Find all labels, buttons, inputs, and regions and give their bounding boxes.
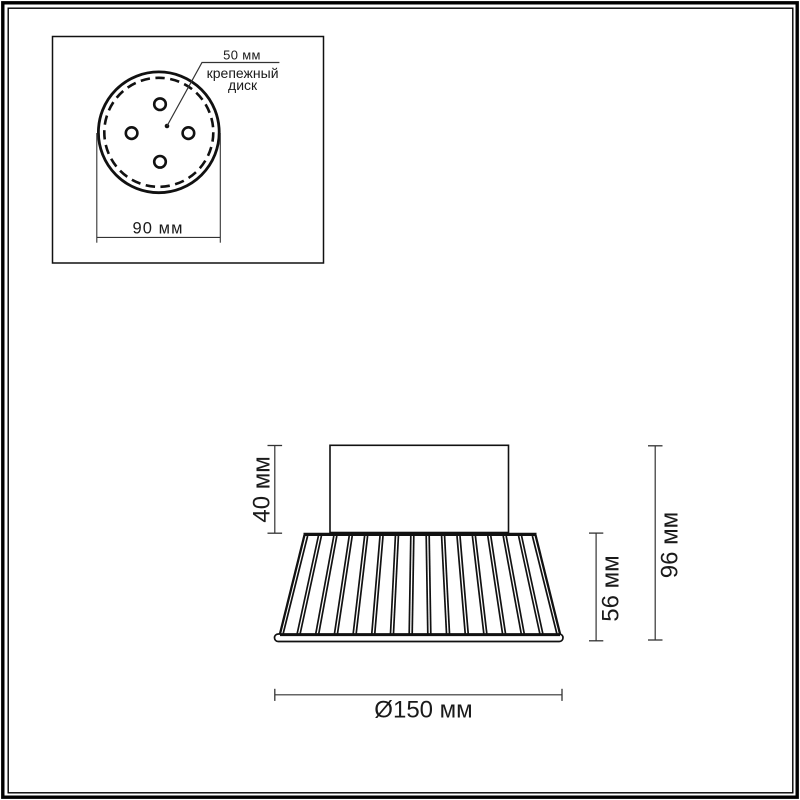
svg-text:диск: диск xyxy=(228,77,258,93)
svg-text:50 мм: 50 мм xyxy=(223,48,261,63)
svg-text:96 мм: 96 мм xyxy=(656,512,683,578)
svg-text:90 мм: 90 мм xyxy=(132,220,183,238)
svg-text:Ø150 мм: Ø150 мм xyxy=(374,696,472,723)
svg-text:40 мм: 40 мм xyxy=(249,456,276,522)
svg-text:56 мм: 56 мм xyxy=(597,555,624,621)
